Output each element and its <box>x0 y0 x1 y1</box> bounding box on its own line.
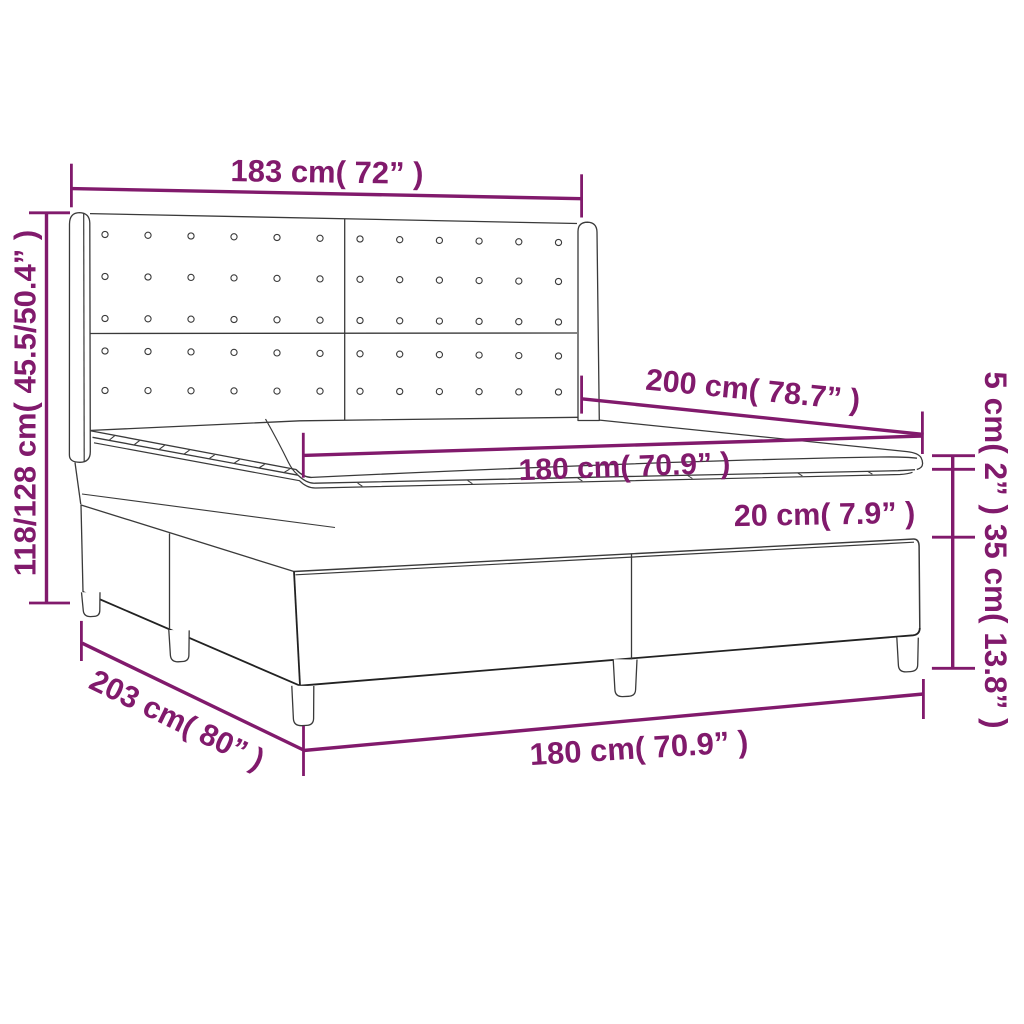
svg-text:5 cm( 2” ) 35 cm( 13.8” ): 5 cm( 2” ) 35 cm( 13.8” ) <box>978 371 1014 728</box>
svg-text:183 cm( 72” ): 183 cm( 72” ) <box>230 153 423 191</box>
svg-text:20 cm( 7.9” ): 20 cm( 7.9” ) <box>734 496 916 533</box>
svg-text:118/128 cm( 45.5/50.4” ): 118/128 cm( 45.5/50.4” ) <box>8 230 43 576</box>
